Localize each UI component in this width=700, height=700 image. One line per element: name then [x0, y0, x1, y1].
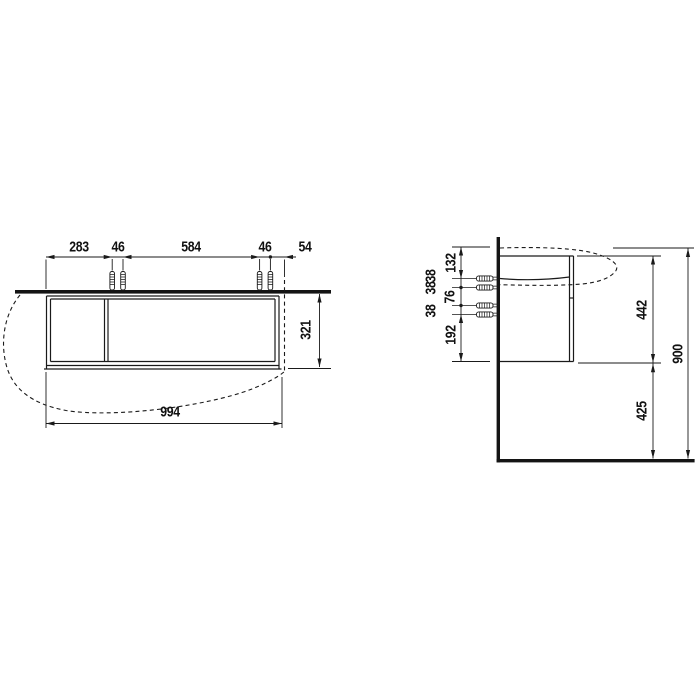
drawing-canvas	[0, 0, 700, 700]
side-wall	[497, 237, 500, 462]
dim-side-38-2: 38	[424, 281, 439, 294]
screw-icon	[452, 285, 500, 290]
dim-side-38-1: 38	[424, 269, 439, 282]
dim-front-top-46-right: 46	[258, 239, 271, 254]
dim-side-192: 192	[443, 325, 458, 345]
side-cabinet	[500, 256, 574, 362]
dim-side-76: 76	[442, 290, 457, 303]
dim-side-900: 900	[671, 344, 686, 364]
dim-front-height-321: 321	[299, 320, 314, 340]
screw-icon	[268, 272, 273, 291]
dim-side-425: 425	[634, 401, 649, 421]
dim-front-width-994: 994	[160, 404, 180, 419]
screw-icon	[452, 312, 500, 317]
dim-side-442: 442	[634, 300, 649, 320]
front-mounting-screws	[110, 272, 273, 291]
screw-icon	[121, 272, 126, 291]
side-view	[452, 237, 695, 462]
dim-side-132: 132	[443, 253, 458, 273]
front-worktop	[15, 290, 331, 294]
screw-icon	[257, 272, 262, 291]
side-mounting-screws	[452, 276, 500, 317]
screw-icon	[452, 303, 500, 308]
dim-front-top-46-left: 46	[111, 239, 124, 254]
side-basin-underside	[500, 277, 570, 280]
dim-side-38-3: 38	[424, 304, 439, 317]
side-442-425-dimensions	[577, 256, 661, 459]
dim-front-top-54: 54	[298, 240, 311, 255]
dim-front-top-283: 283	[69, 240, 89, 255]
dim-front-top-584: 584	[182, 240, 202, 255]
side-floor	[497, 459, 695, 462]
front-cabinet	[44, 296, 282, 369]
screw-icon	[452, 276, 500, 281]
technical-drawing-page: 283 46 584 46 54 994 321 132 38 38 76 38…	[0, 0, 700, 700]
screw-icon	[110, 272, 115, 291]
